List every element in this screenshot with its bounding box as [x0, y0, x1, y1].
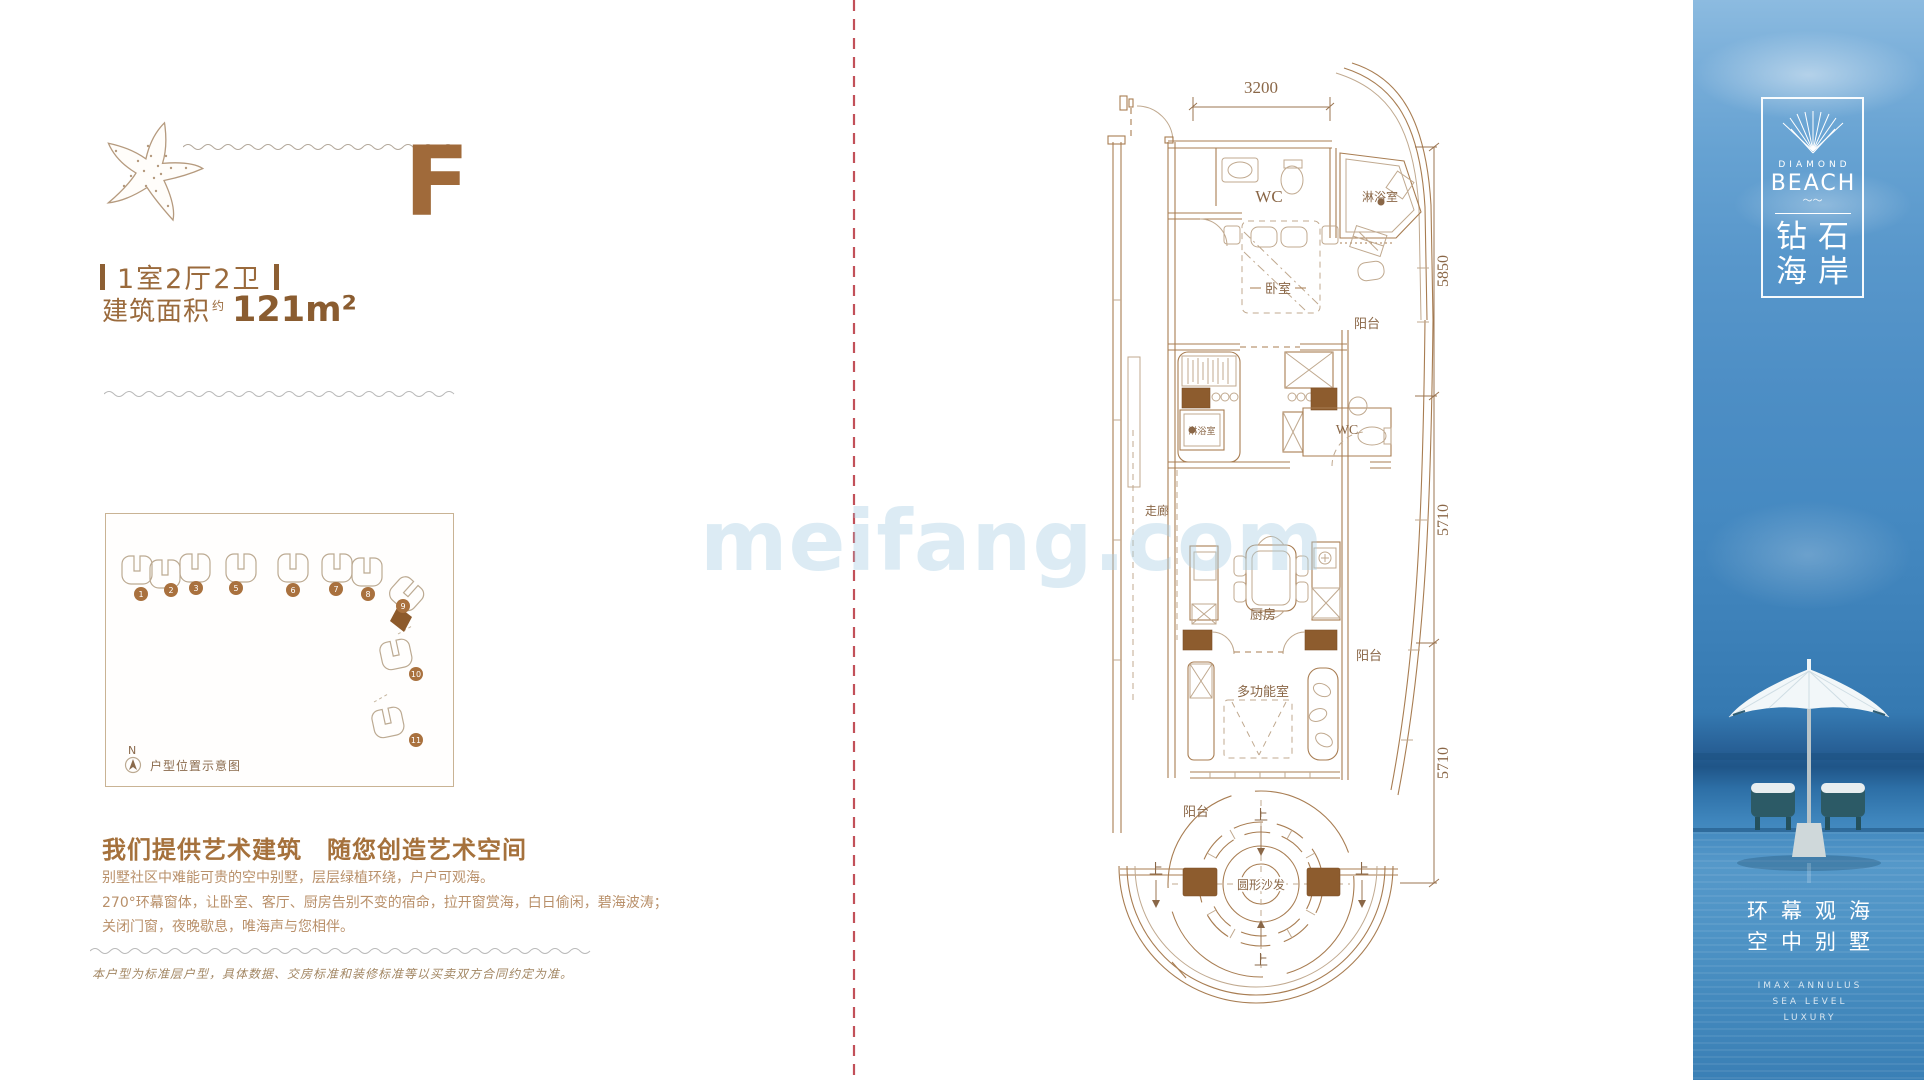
wavy-divider-mid: [104, 387, 456, 401]
cloud-decoration: [1703, 500, 1913, 610]
tagline-en-line3: LUXURY: [1693, 1010, 1924, 1026]
dim-right-label-3: 5710: [1435, 747, 1452, 779]
wc-top-room: [1168, 158, 1303, 246]
diamond-beach-logo: DIAMOND BEACH 〜〜 钻石 海岸: [1761, 97, 1864, 298]
svg-text:9: 9: [400, 602, 405, 611]
disclaimer-text: 本户型为标准层户型，具体数据、交房标准和装修标准等以买卖双方合同约定为准。: [92, 965, 573, 982]
area-row: 建筑面积 约 121m²: [102, 291, 357, 328]
room-label-corridor: 走廊: [1145, 503, 1169, 518]
diamond-rays-icon: [1778, 109, 1848, 155]
bath-cluster: [1168, 352, 1391, 468]
bedroom: [1168, 221, 1347, 350]
room-label-wc-mid: WC: [1336, 423, 1359, 438]
area-label: 建筑面积: [102, 291, 210, 328]
logo-text-beach: BEACH: [1769, 171, 1857, 196]
svg-text:11: 11: [411, 736, 421, 745]
room-label-wc-top: WC: [1255, 187, 1282, 206]
wavy-divider-bottom: [90, 944, 592, 958]
lounge-chair-left: [1751, 783, 1795, 830]
room-label-shower-annex: 淋浴室: [1362, 189, 1398, 204]
kitchen-room: [1183, 537, 1340, 655]
room-label-balcony-upper: 阳台: [1354, 316, 1380, 331]
siteplan-caption: 户型位置示意图: [150, 757, 241, 774]
floor-plan-drawing: 3200 5850 5710 5710 WC 淋浴室 卧室 阳台 淋浴室 WC …: [1060, 50, 1490, 1030]
svg-text:7: 7: [333, 585, 338, 594]
stair-up-label-left: 上: [1149, 862, 1163, 878]
sidebar-tagline: 环幕观海 空中别墅 IMAX ANNULUS SEA LEVEL LUXURY: [1693, 896, 1924, 1026]
room-label-balcony-bottom: 阳台: [1183, 804, 1209, 819]
description-line: 别墅社区中难能可贵的空中别墅，层层绿植环绕，户户可观海。: [102, 866, 722, 891]
room-label-kitchen: 厨房: [1250, 607, 1276, 622]
layout-bar-right: [274, 264, 279, 290]
stair-up-label-right: 上: [1355, 862, 1369, 878]
beach-umbrella-illustration: [1693, 655, 1924, 885]
area-value: 121m²: [232, 293, 357, 328]
description-line: 270°环幕窗体，让卧室、客厅、厨房告别不变的宿命，拉开窗赏海，白日偷闲，碧海波…: [102, 891, 722, 916]
svg-text:N: N: [128, 744, 136, 757]
fold-line: [851, 0, 857, 1080]
starfish-icon: [96, 116, 208, 236]
plan-left-wall: [1108, 136, 1140, 833]
svg-text:6: 6: [290, 586, 295, 595]
entrance-door: [1120, 96, 1173, 143]
plan-main-walls: [1168, 141, 1336, 778]
brochure-page: F 1室2厅2卫 建筑面积 约 121m²: [0, 0, 1924, 1080]
room-label-bedroom: 卧室: [1265, 281, 1291, 296]
svg-text:10: 10: [411, 670, 421, 679]
tagline-cn-line2: 空中别墅: [1693, 927, 1924, 958]
brand-sidebar: DIAMOND BEACH 〜〜 钻石 海岸: [1693, 0, 1924, 1080]
svg-text:1: 1: [138, 590, 143, 599]
room-label-multi-room: 多功能室: [1237, 684, 1289, 699]
svg-text:2: 2: [168, 586, 173, 595]
siteplan-buildings: [122, 554, 427, 739]
siteplan-box: 1 2 3 5 6 7 8 9 10 11 N 户型位置示意图: [105, 513, 454, 787]
dim-top-label: 3200: [1244, 78, 1278, 97]
tagline-en: IMAX ANNULUS SEA LEVEL LUXURY: [1693, 978, 1924, 1026]
slogan-heading: 我们提供艺术建筑 随您创造艺术空间: [102, 830, 527, 865]
svg-text:3: 3: [193, 584, 198, 593]
unit-letter: F: [404, 134, 470, 230]
room-label-balcony-mid: 阳台: [1356, 648, 1382, 663]
logo-cn-line2: 海岸: [1765, 255, 1860, 290]
dim-right-label-1: 5850: [1435, 255, 1452, 287]
logo-text-diamond: DIAMOND: [1774, 160, 1850, 170]
siteplan-numbers: 1 2 3 5 6 7 8 9 10 11: [134, 581, 423, 747]
svg-text:8: 8: [365, 590, 370, 599]
logo-wave-glyph: 〜〜: [1803, 198, 1823, 206]
room-label-shower-mid: 淋浴室: [1188, 425, 1215, 436]
north-compass-icon: N: [126, 744, 141, 773]
room-label-round-sofa: 圆形沙发: [1237, 877, 1285, 892]
tagline-en-line1: IMAX ANNULUS: [1693, 978, 1924, 994]
balcony-upper-furniture: [1342, 226, 1387, 780]
description-line: 关闭门窗，夜晚歇息，唯海声与您相伴。: [102, 915, 722, 940]
multi-function-room: [1188, 662, 1340, 778]
stair-up-label-bottom: 上: [1254, 953, 1268, 969]
lounge-chair-right: [1821, 783, 1865, 830]
dim-right-label-2: 5710: [1435, 504, 1452, 536]
area-approx-sup: 约: [212, 297, 224, 314]
logo-cn-line1: 钻石: [1765, 220, 1860, 255]
description-paragraphs: 别墅社区中难能可贵的空中别墅，层层绿植环绕，户户可观海。 270°环幕窗体，让卧…: [102, 866, 722, 940]
logo-divider: [1775, 213, 1851, 214]
dimension-lines: [1189, 97, 1439, 887]
tagline-en-line2: SEA LEVEL: [1693, 994, 1924, 1010]
stair-up-label-top: 上: [1254, 808, 1268, 824]
svg-text:5: 5: [233, 584, 238, 593]
tagline-cn-line1: 环幕观海: [1693, 896, 1924, 927]
siteplan-drawing: 1 2 3 5 6 7 8 9 10 11 N: [106, 514, 451, 784]
